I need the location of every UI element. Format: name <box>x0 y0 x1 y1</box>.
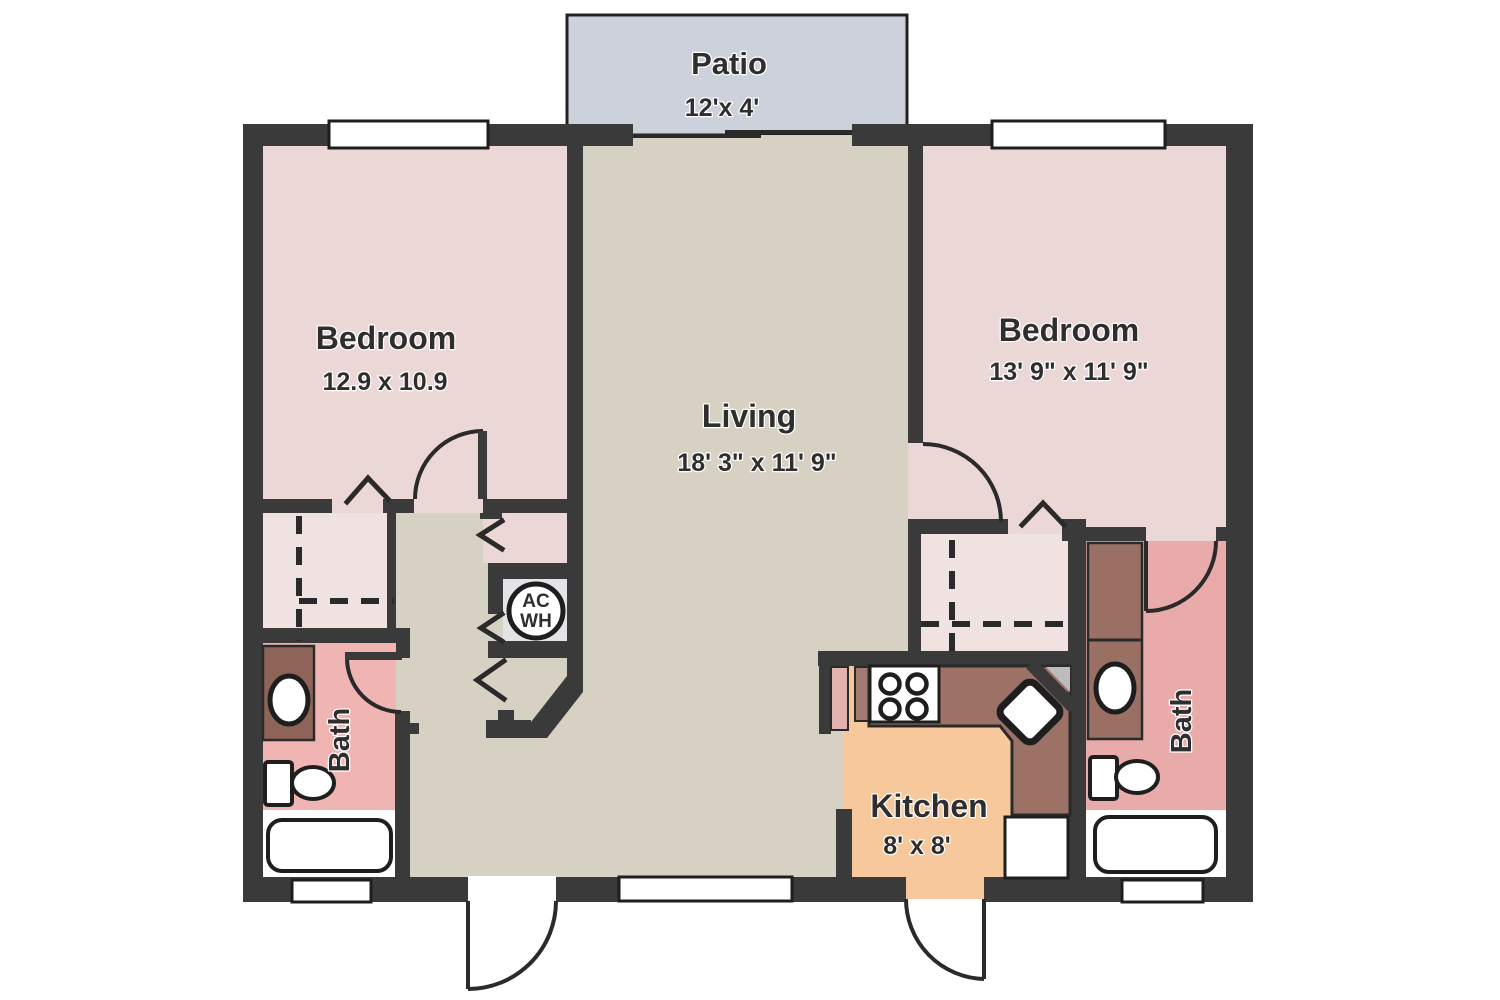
svg-text:Kitchen: Kitchen <box>870 788 987 824</box>
svg-text:Patio: Patio <box>691 46 767 81</box>
svg-text:Living: Living <box>702 398 796 434</box>
svg-text:8' x 8': 8' x 8' <box>883 832 951 860</box>
svg-text:18' 3" x 11' 9": 18' 3" x 11' 9" <box>677 449 836 477</box>
svg-text:Bedroom: Bedroom <box>316 320 456 356</box>
svg-text:Bedroom: Bedroom <box>999 312 1139 348</box>
svg-text:13' 9" x 11' 9": 13' 9" x 11' 9" <box>989 358 1148 386</box>
svg-text:AC: AC <box>522 591 550 612</box>
svg-text:12.9 x 10.9: 12.9 x 10.9 <box>322 368 447 396</box>
svg-text:Bath: Bath <box>324 708 356 772</box>
svg-text:WH: WH <box>520 611 552 632</box>
svg-text:12'x 4': 12'x 4' <box>685 94 759 122</box>
svg-text:Bath: Bath <box>1166 689 1198 753</box>
